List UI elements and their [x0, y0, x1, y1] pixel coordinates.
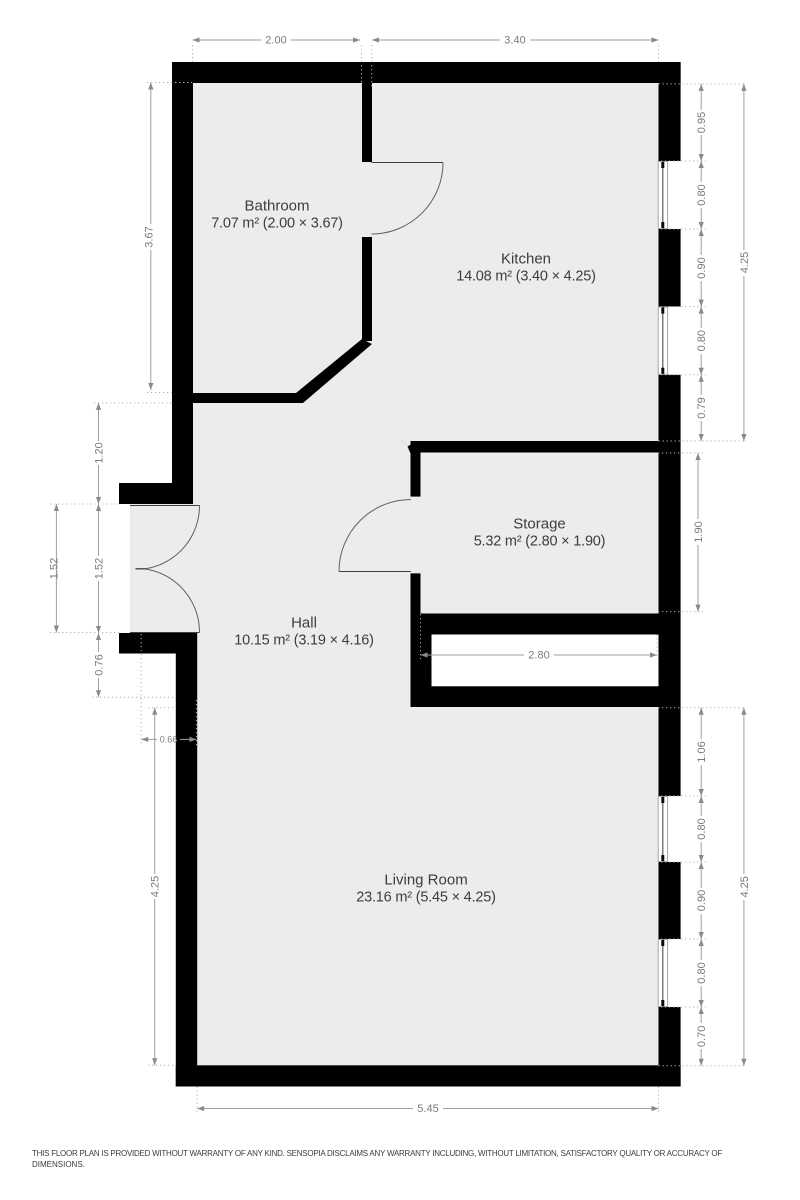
svg-text:3.40: 3.40 [504, 35, 525, 47]
svg-text:2.00: 2.00 [265, 35, 286, 47]
svg-text:0.80: 0.80 [696, 818, 708, 839]
svg-text:10.15 m² (3.19 × 4.16): 10.15 m² (3.19 × 4.16) [234, 633, 373, 649]
svg-text:DIMENSIONS.: DIMENSIONS. [32, 1160, 85, 1169]
svg-text:2.80: 2.80 [528, 650, 549, 662]
svg-text:4.25: 4.25 [739, 252, 751, 273]
svg-text:3.67: 3.67 [144, 226, 156, 247]
svg-text:0.76: 0.76 [94, 654, 106, 675]
svg-text:0.80: 0.80 [696, 184, 708, 205]
svg-text:1.90: 1.90 [693, 521, 705, 542]
svg-text:7.07 m² (2.00 × 3.67): 7.07 m² (2.00 × 3.67) [211, 216, 343, 232]
svg-text:THIS FLOOR PLAN IS PROVIDED WI: THIS FLOOR PLAN IS PROVIDED WITHOUT WARR… [32, 1149, 722, 1158]
svg-text:0.80: 0.80 [696, 330, 708, 351]
svg-text:0.80: 0.80 [696, 962, 708, 983]
svg-text:Hall: Hall [291, 615, 317, 632]
svg-text:1.20: 1.20 [94, 442, 106, 463]
svg-text:1.52: 1.52 [49, 558, 61, 579]
svg-text:4.25: 4.25 [739, 876, 751, 897]
svg-text:0.90: 0.90 [696, 257, 708, 278]
svg-text:14.08 m² (3.40 × 4.25): 14.08 m² (3.40 × 4.25) [456, 269, 595, 285]
svg-text:Bathroom: Bathroom [244, 198, 309, 215]
svg-text:5.45: 5.45 [417, 1103, 438, 1115]
svg-text:0.90: 0.90 [696, 890, 708, 911]
svg-text:0.79: 0.79 [696, 397, 708, 418]
svg-text:4.25: 4.25 [150, 876, 162, 897]
svg-text:23.16 m² (5.45 × 4.25): 23.16 m² (5.45 × 4.25) [356, 889, 495, 905]
svg-text:0.70: 0.70 [696, 1026, 708, 1047]
svg-text:Storage: Storage [513, 516, 566, 533]
svg-text:Kitchen: Kitchen [501, 251, 551, 268]
svg-text:1.52: 1.52 [94, 558, 106, 579]
svg-text:1.06: 1.06 [696, 741, 708, 762]
svg-text:0.95: 0.95 [696, 112, 708, 133]
svg-text:5.32 m² (2.80 × 1.90): 5.32 m² (2.80 × 1.90) [474, 534, 606, 550]
svg-text:0.66: 0.66 [160, 734, 178, 744]
svg-text:Living Room: Living Room [384, 871, 467, 888]
